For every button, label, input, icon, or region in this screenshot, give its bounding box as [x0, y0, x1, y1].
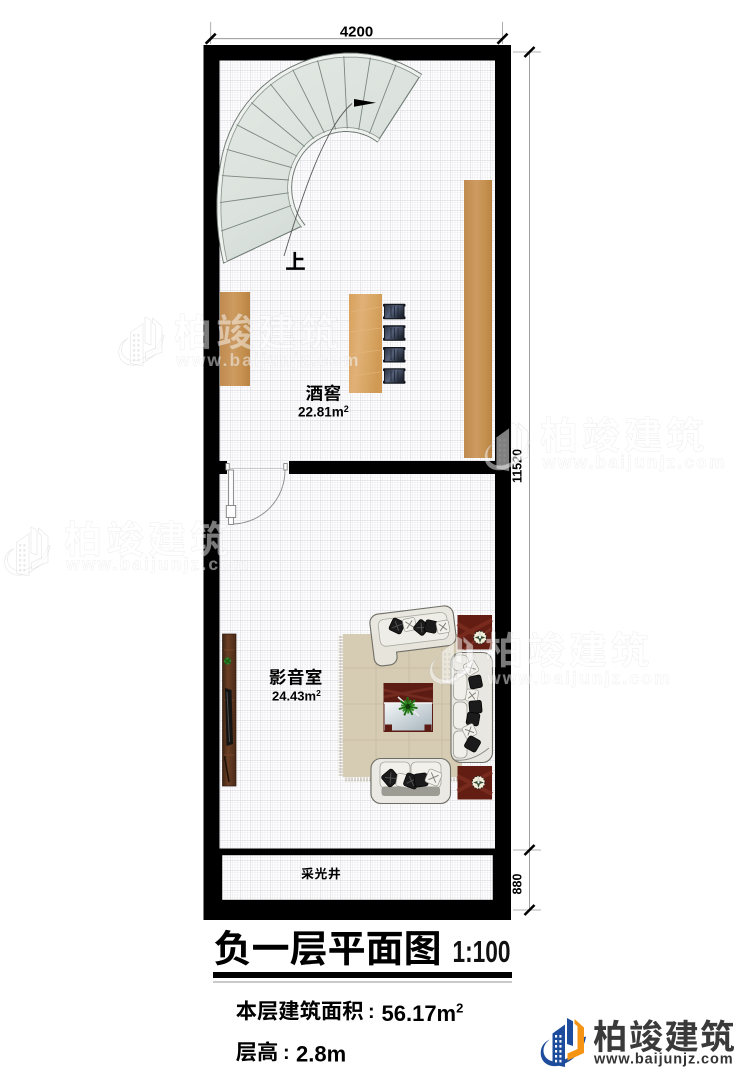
svg-text:www.baijunjz.com: www.baijunjz.com — [65, 554, 251, 574]
svg-text:2.8m: 2.8m — [296, 1042, 346, 1067]
svg-text:www.baijunjz.com: www.baijunjz.com — [175, 350, 361, 370]
svg-text:www.baijunjz.com: www.baijunjz.com — [486, 668, 672, 688]
svg-text:56.17m2: 56.17m2 — [382, 1001, 464, 1027]
svg-text::: : — [368, 1001, 375, 1023]
svg-text:24.43m2: 24.43m2 — [272, 688, 321, 704]
svg-text:www.baijunjz.com: www.baijunjz.com — [593, 1052, 734, 1068]
svg-text::: : — [283, 1042, 290, 1064]
svg-text:22.81m2: 22.81m2 — [298, 404, 349, 420]
svg-text:880: 880 — [511, 874, 525, 895]
svg-text:1:100: 1:100 — [453, 934, 511, 969]
svg-text:4200: 4200 — [340, 24, 373, 41]
svg-text:www.baijunjz.com: www.baijunjz.com — [541, 452, 727, 472]
